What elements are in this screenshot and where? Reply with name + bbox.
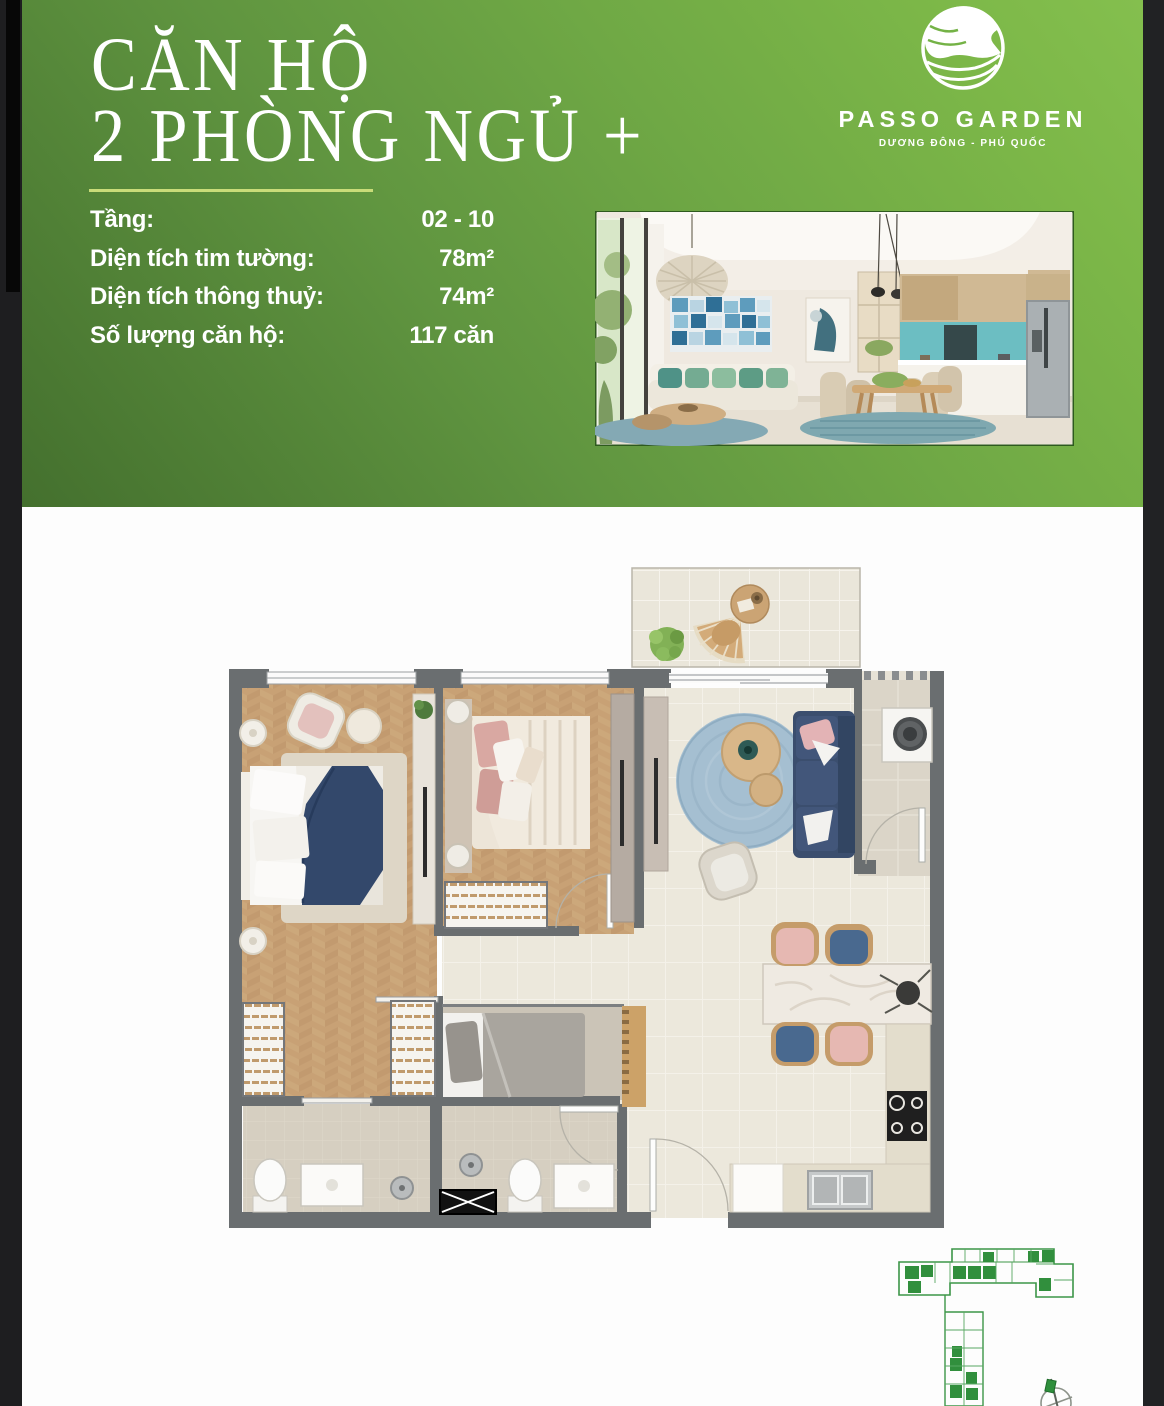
svg-text:DƯƠNG ĐÔNG - PHÚ QUỐC: DƯƠNG ĐÔNG - PHÚ QUỐC bbox=[879, 135, 1047, 149]
svg-text:PASSO GARDEN: PASSO GARDEN bbox=[839, 106, 1088, 132]
